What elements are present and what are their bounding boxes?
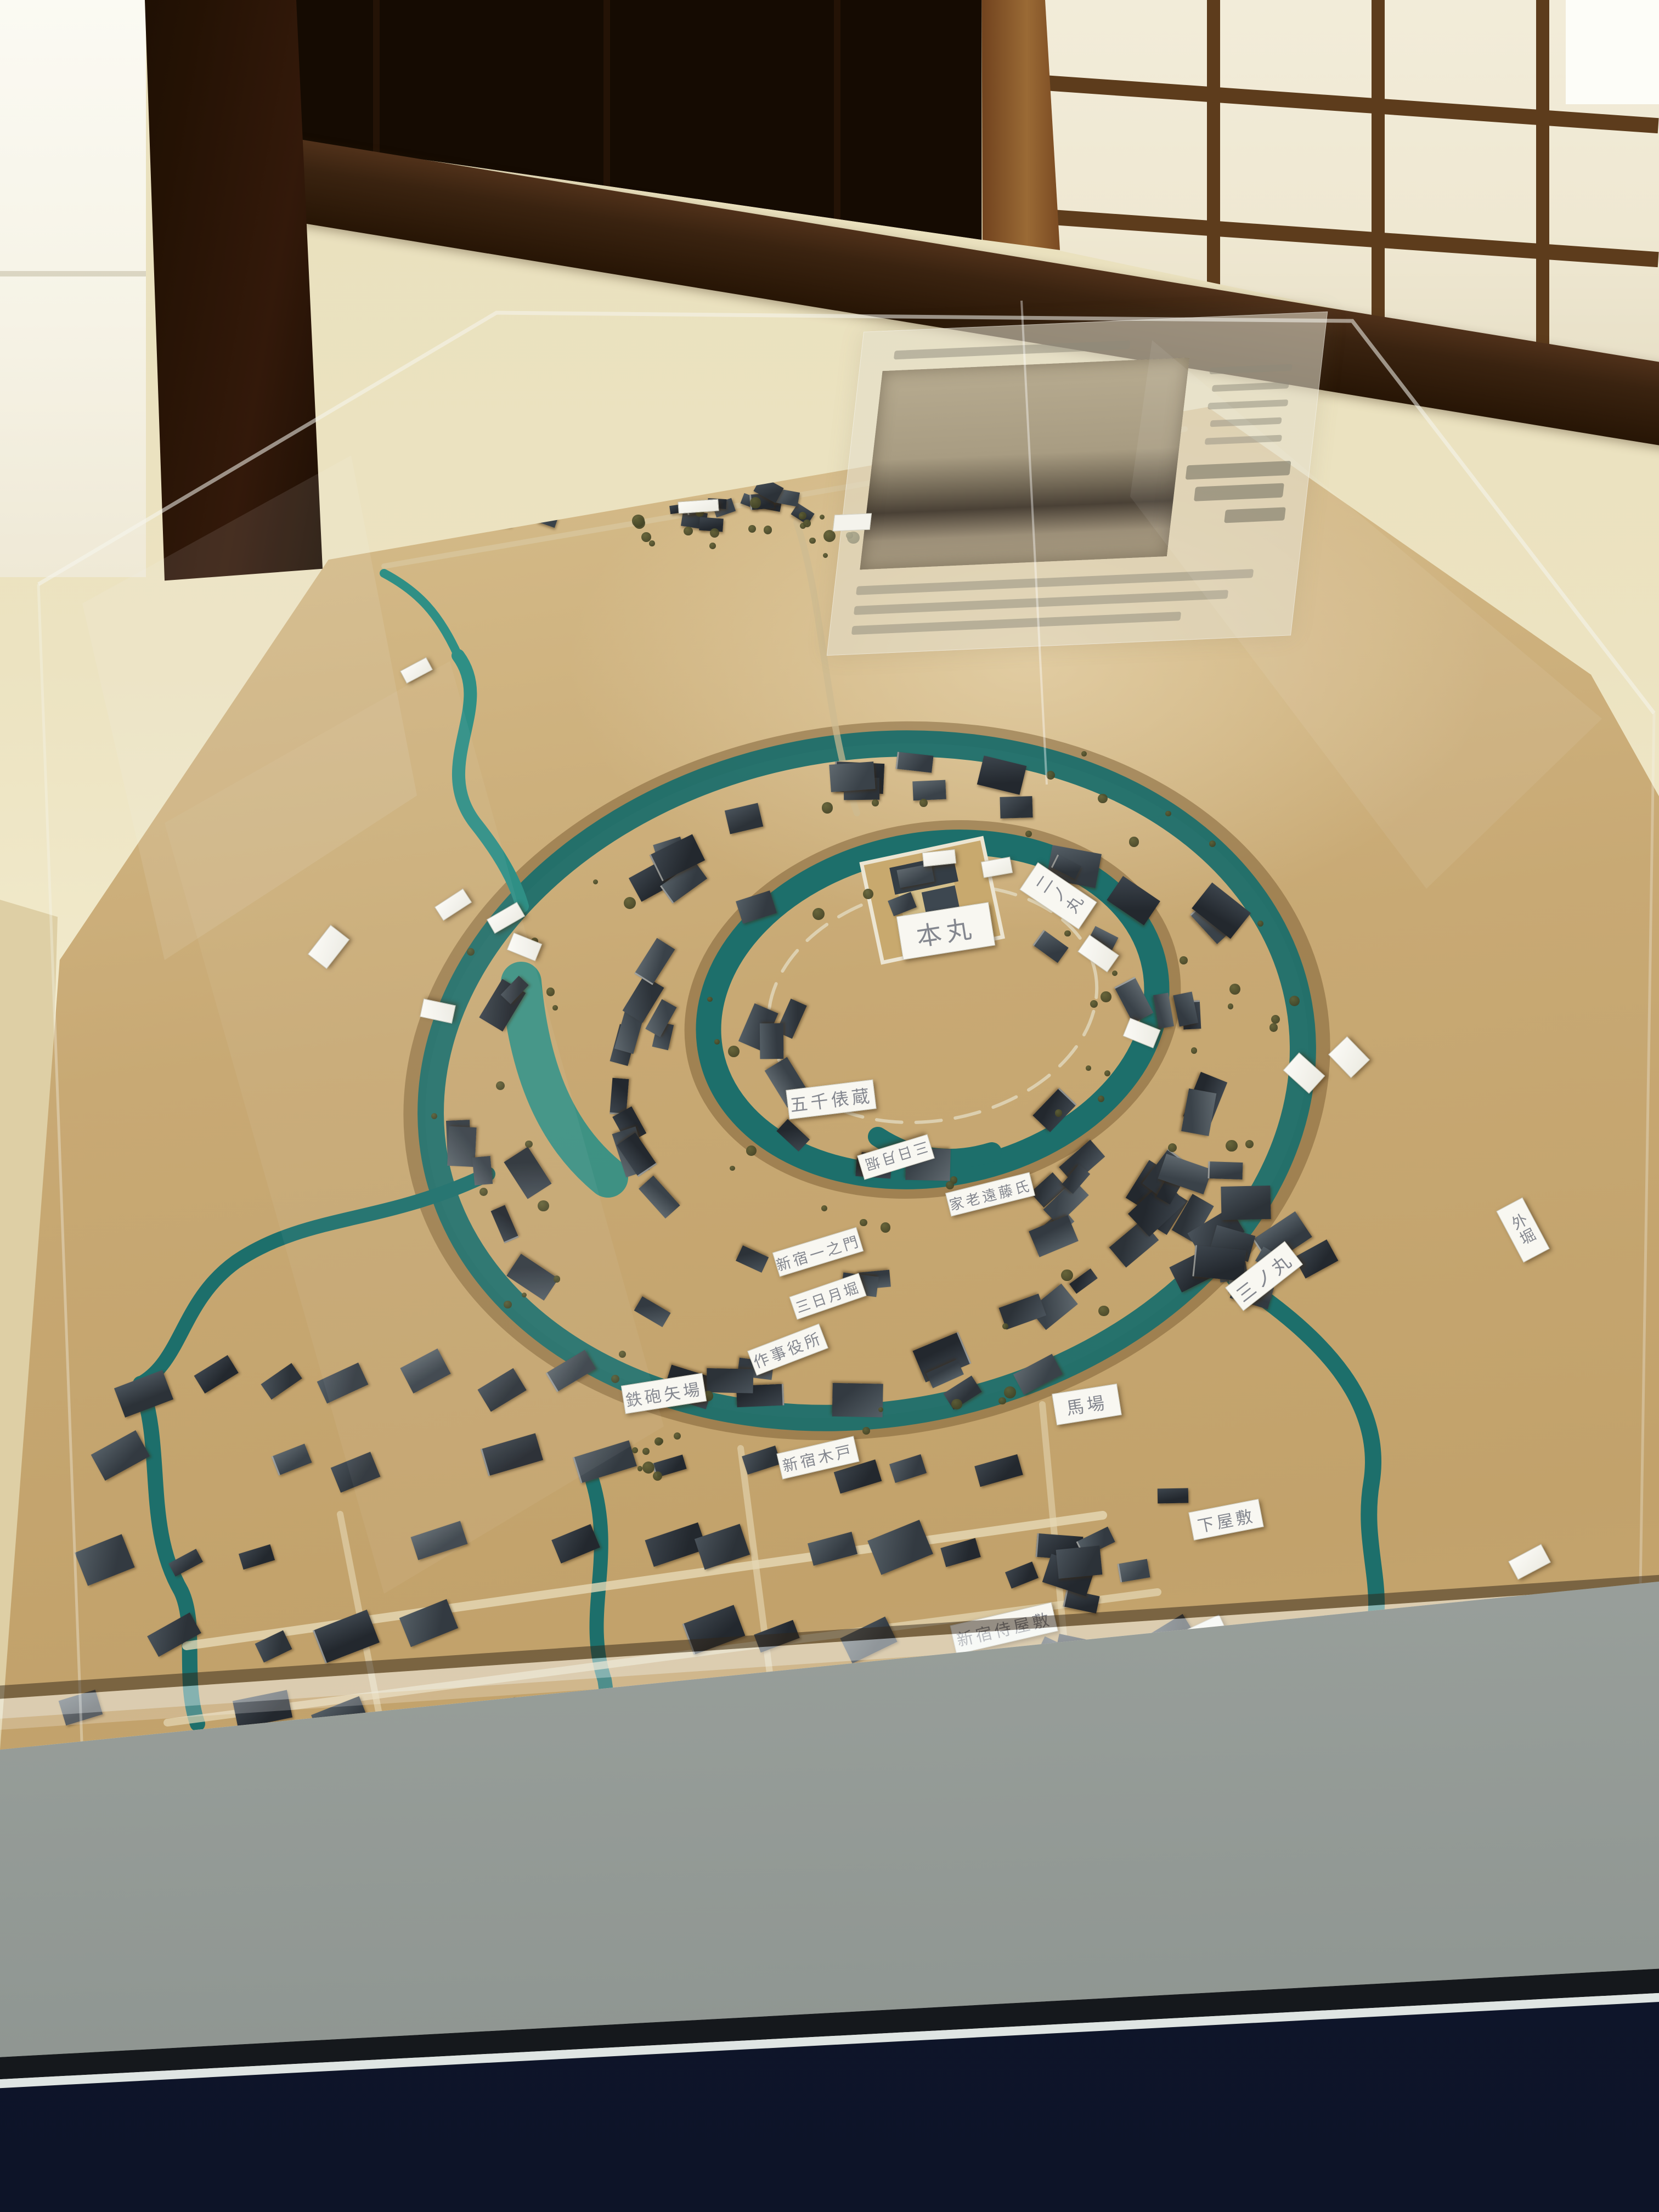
museum-photo: 本丸二ノ丸三ノ丸外堀五千俵蔵三日月堀家老遠藤氏新宿一之門三日月堀作事役所鉄砲矢場… [0,0,1659,2212]
